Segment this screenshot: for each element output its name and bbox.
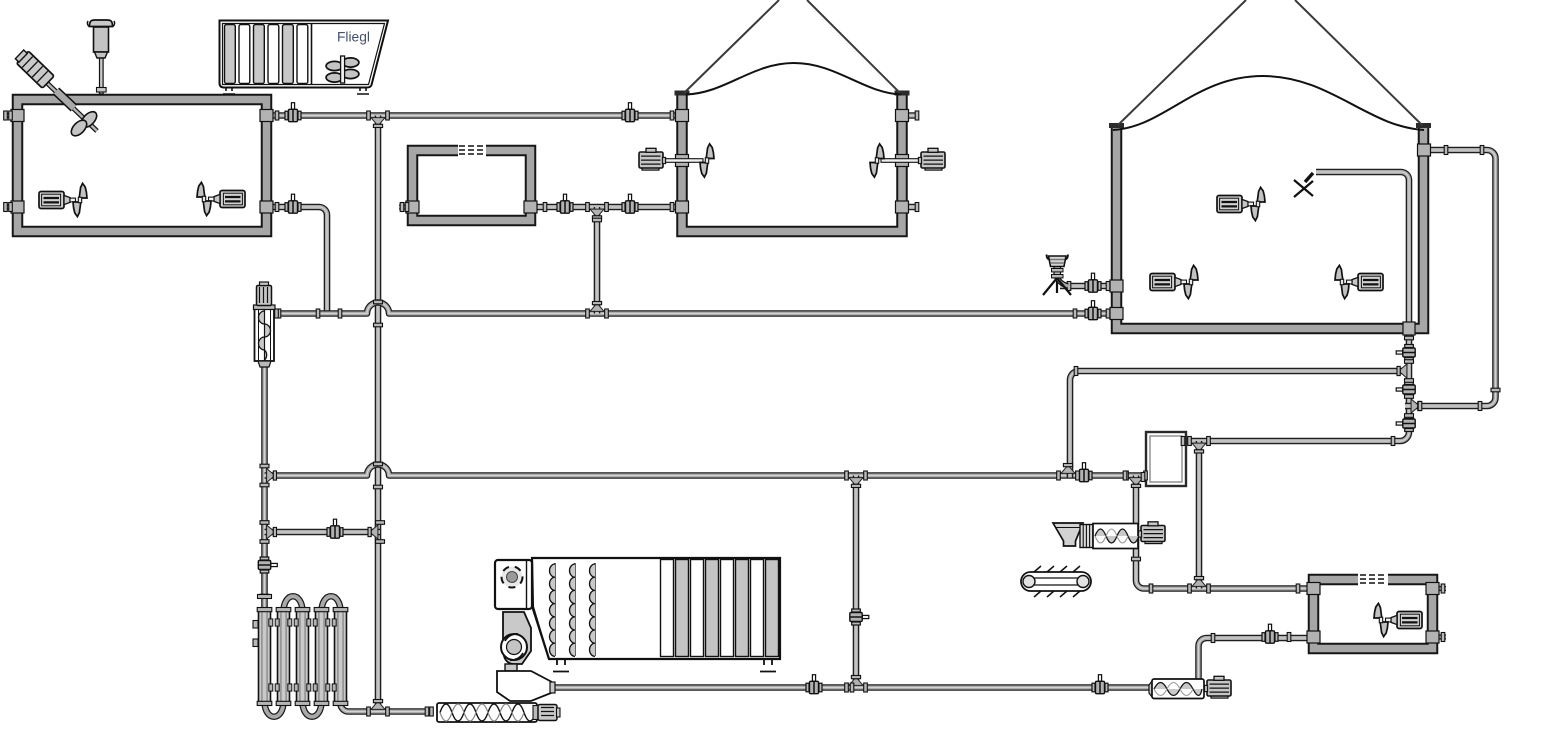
svg-text:Fliegl: Fliegl [337, 30, 370, 45]
